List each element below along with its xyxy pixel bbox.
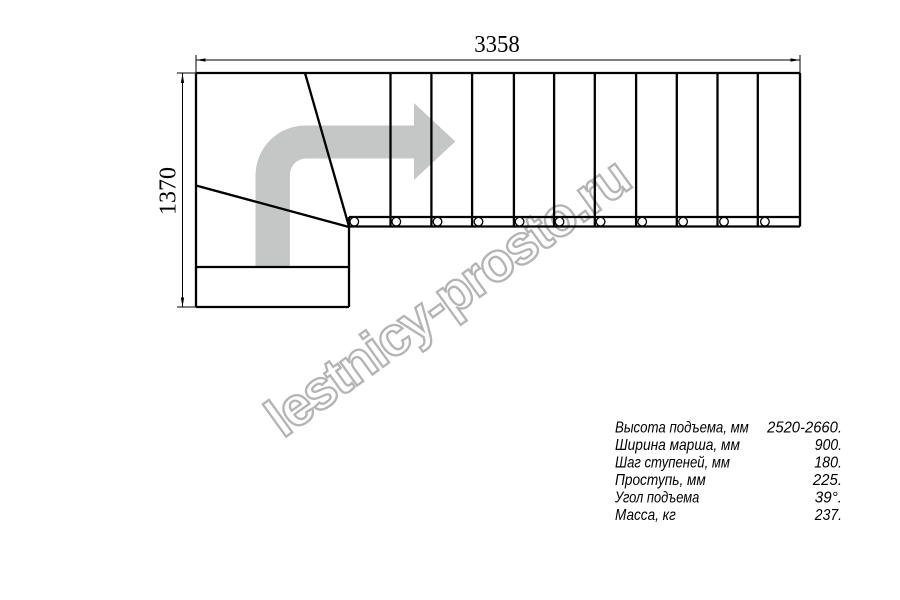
svg-text:lestnicy-prosto.ru: lestnicy-prosto.ru [254, 145, 642, 449]
svg-text:Проступь, мм: Проступь, мм [615, 472, 706, 489]
svg-text:Высота подъема, мм: Высота подъема, мм [615, 419, 749, 436]
svg-text:Масса, кг: Масса, кг [615, 507, 676, 524]
svg-text:Шаг ступеней, мм: Шаг ступеней, мм [615, 454, 730, 471]
svg-text:180.: 180. [814, 454, 842, 472]
svg-text:3358: 3358 [474, 31, 520, 58]
svg-text:225.: 225. [812, 471, 842, 489]
svg-text:Угол подъема: Угол подъема [614, 489, 699, 507]
svg-text:Ширина марша, мм: Ширина марша, мм [615, 436, 740, 454]
svg-text:2520-2660.: 2520-2660. [766, 419, 842, 437]
svg-text:237.: 237. [814, 506, 842, 524]
svg-text:1370: 1370 [156, 167, 182, 215]
svg-text:900.: 900. [815, 436, 842, 454]
svg-text:39°.: 39°. [815, 489, 842, 506]
